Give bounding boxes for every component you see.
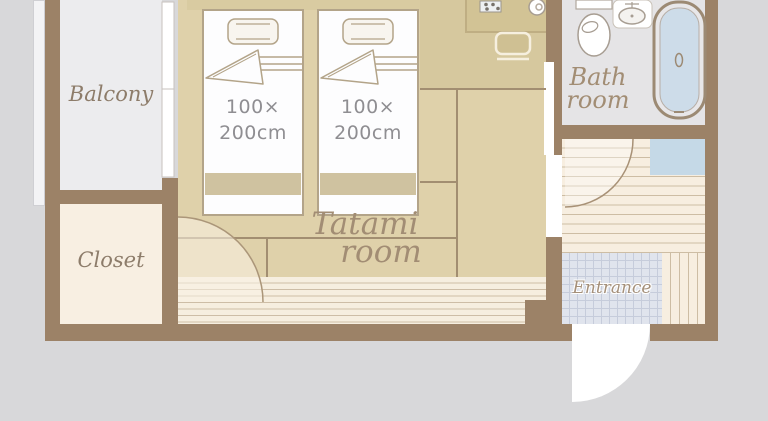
bed-right-size-label: 100× 200cm: [318, 94, 418, 146]
engawa-strip: [178, 277, 546, 324]
balcony-label: Balcony: [60, 82, 162, 106]
tatami-label-line2: room: [317, 238, 445, 266]
bed-left-size-label: 100× 200cm: [203, 94, 303, 146]
wall-bottom-left: [45, 324, 572, 341]
wall-closet-right: [162, 178, 178, 324]
wall-left: [45, 0, 60, 341]
wall-bathroom-bottom: [546, 125, 705, 139]
entrance-door-swing: [572, 324, 650, 402]
bed-left-size-line1: 100×: [203, 94, 303, 120]
bed-right-size-line2: 200cm: [318, 120, 418, 146]
floor-plan: Balcony Closet Tatami room Bath room Ent…: [0, 0, 768, 421]
washing-machine-space: [650, 139, 705, 175]
bed-left-size-line2: 200cm: [203, 120, 303, 146]
kitchen-counter: [465, 0, 546, 33]
entrance-label: Entrance: [562, 278, 662, 298]
shoe-area-floor: [662, 253, 705, 324]
bathroom-label: Bath room: [552, 66, 644, 112]
bathroom-label-line2: room: [552, 89, 644, 112]
bed-head-floor-strip: [187, 0, 420, 10]
wall-balcony-closet-divider: [45, 190, 178, 204]
bed-right-size-line1: 100×: [318, 94, 418, 120]
tatami-room-label: Tatami room: [285, 210, 445, 266]
closet-label: Closet: [60, 248, 162, 272]
wall-right: [705, 0, 718, 341]
balcony-railing: [33, 0, 45, 206]
wall-engawa-notch: [525, 300, 562, 324]
sliding-window: [162, 2, 174, 177]
sliding-door-opening: [546, 155, 562, 237]
